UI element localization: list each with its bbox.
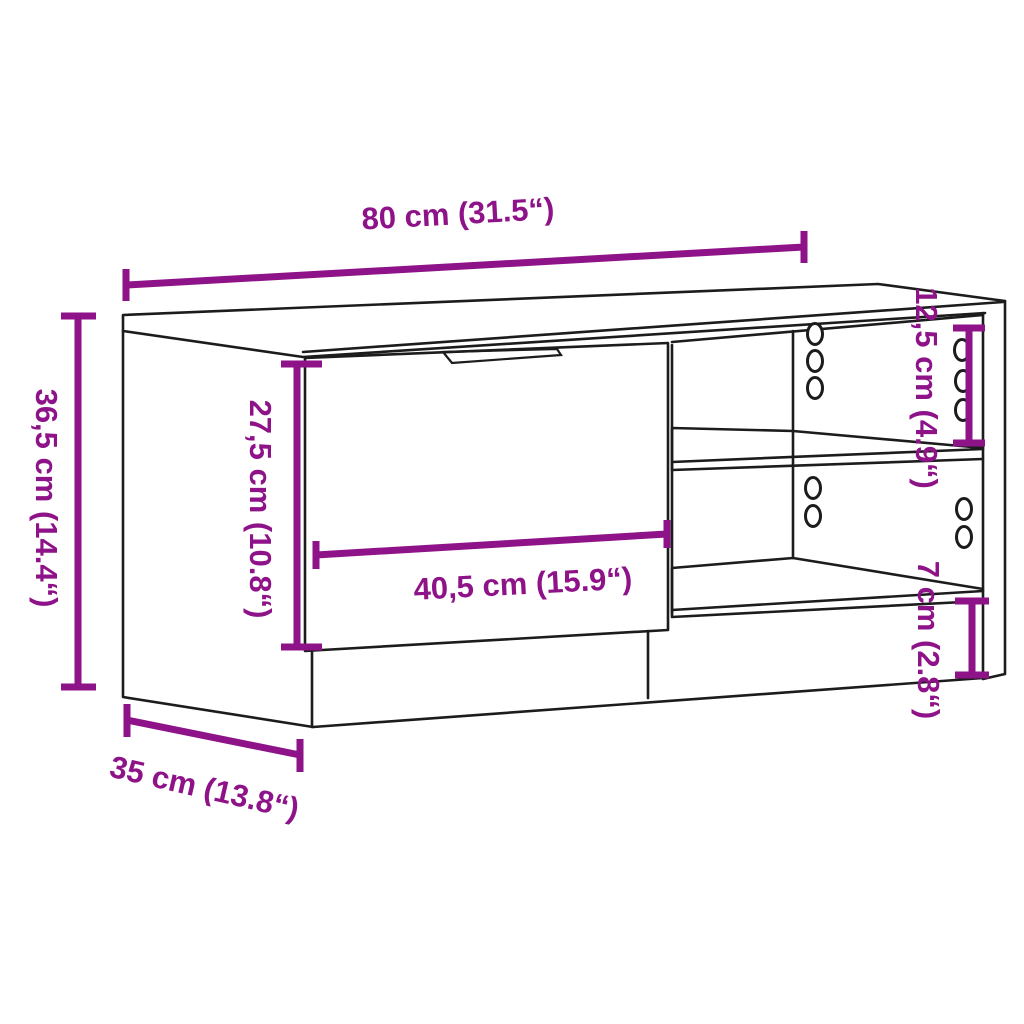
dimension-overall-height: 36,5 cm (14.4“) [29, 316, 96, 687]
dimension-diagram: 80 cm (31.5“) 36,5 cm (14.4“) 27,5 cm (1… [0, 0, 1024, 1024]
peg-hole [806, 506, 821, 527]
dimension-label: 7 cm (2.8“) [911, 561, 946, 720]
peg-hole [808, 351, 823, 372]
left-side-panel [123, 331, 313, 727]
dimension-label: 27,5 cm (10.8“) [243, 400, 278, 619]
cabinet-dimension-drawing: 80 cm (31.5“) 36,5 cm (14.4“) 27,5 cm (1… [0, 0, 1024, 1024]
dimension-label: 80 cm (31.5“) [361, 191, 556, 237]
cabinet-door [305, 343, 668, 651]
peg-hole [808, 324, 823, 345]
dimension-label: 12,5 cm (4.9“) [909, 287, 944, 489]
peg-hole [957, 499, 972, 520]
peg-hole [957, 527, 972, 548]
right-side-panel [983, 301, 1005, 679]
dimension-overall-depth: 35 cm (13.8“) [107, 704, 303, 827]
dimension-label: 35 cm (13.8“) [107, 749, 303, 827]
peg-hole [806, 478, 821, 499]
peg-hole [808, 378, 823, 399]
dimension-overall-width: 80 cm (31.5“) [126, 191, 804, 301]
peg-holes-divider [806, 324, 823, 527]
dimension-line [61, 316, 96, 687]
dimension-label: 36,5 cm (14.4“) [29, 389, 64, 608]
